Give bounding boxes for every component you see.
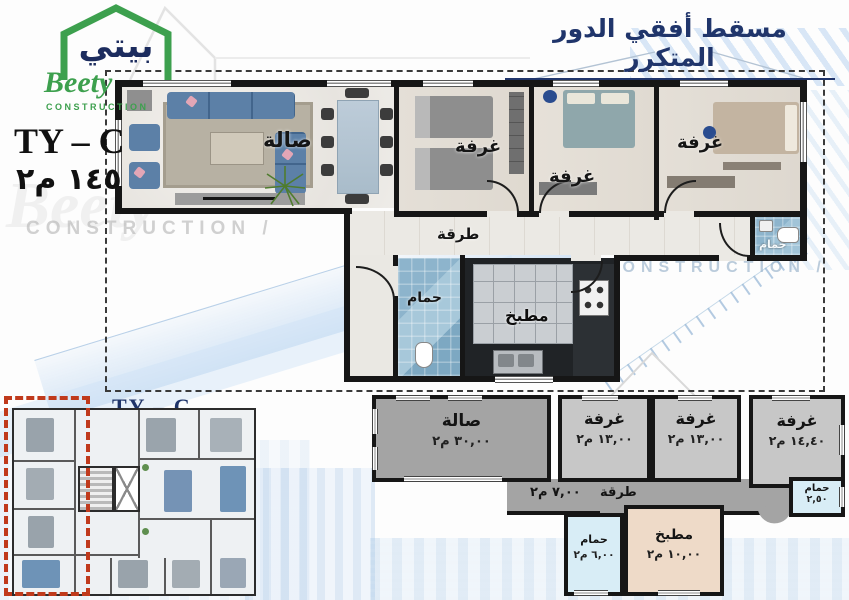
bedroom3-label: غرفة bbox=[677, 132, 723, 153]
schematic-room-hall: صالة ٣٠,٠٠ م٢ bbox=[372, 395, 551, 482]
window bbox=[658, 590, 700, 596]
window bbox=[448, 395, 482, 401]
bed-pillow bbox=[601, 93, 629, 104]
window bbox=[582, 395, 618, 401]
dining-table bbox=[337, 100, 379, 194]
plant-icon bbox=[263, 164, 307, 208]
dining-chair bbox=[321, 136, 334, 148]
dining-chair bbox=[321, 164, 334, 176]
schematic-room-bathroom-left: حمام ٦,٠٠ م٢ bbox=[564, 513, 624, 596]
unit-highlight bbox=[4, 396, 90, 596]
window bbox=[372, 447, 378, 470]
bed-pillow bbox=[415, 96, 430, 138]
mini-plant bbox=[142, 464, 149, 471]
elevator bbox=[114, 466, 140, 512]
dining-chair bbox=[345, 194, 369, 204]
sink-basin bbox=[518, 354, 534, 367]
window bbox=[839, 425, 845, 455]
bed-pillow bbox=[785, 105, 797, 151]
logo-arabic-name: بيتي bbox=[66, 26, 166, 66]
bed-bench bbox=[723, 162, 781, 170]
window bbox=[574, 590, 608, 596]
dining-chair bbox=[345, 88, 369, 98]
logo: بيتي Beety CONSTRUCTION bbox=[18, 4, 228, 122]
window bbox=[678, 395, 712, 401]
schematic-corridor-area: ٧,٠٠ م٢ bbox=[530, 485, 581, 500]
toilet bbox=[415, 342, 433, 368]
mini-bed bbox=[146, 418, 176, 452]
armchair-left-1 bbox=[129, 124, 160, 151]
window bbox=[372, 409, 378, 434]
bedroom2-label: غرفة bbox=[549, 166, 595, 187]
area-schematic: صالة ٣٠,٠٠ م٢ غرفة ١٣,٠٠ م٢ غرفة ١٣,٠٠ م… bbox=[372, 393, 849, 600]
nightstand bbox=[543, 90, 557, 103]
main-floor-plan: صالة غرفة غرفة غرفة طرقة حمام مطبخ حمام bbox=[115, 80, 807, 382]
dining-chair bbox=[380, 164, 393, 176]
mini-bed bbox=[172, 560, 200, 588]
schematic-room-bedroom-3: غرفة ١٤,٤٠ م٢ bbox=[749, 395, 845, 488]
small-bathroom-label: حمام bbox=[759, 238, 787, 251]
dining-chair bbox=[380, 108, 393, 120]
coffee-table bbox=[210, 132, 264, 165]
logo-latin-name: Beety bbox=[44, 66, 112, 100]
page-title: مسقط أفقي الدور المتكرر bbox=[505, 14, 835, 80]
bedroom1-label: غرفة bbox=[455, 136, 501, 157]
bed-pillow bbox=[415, 148, 430, 190]
window bbox=[495, 376, 553, 383]
kitchen-label: مطبخ bbox=[505, 306, 549, 325]
window bbox=[553, 80, 599, 87]
unit-area: ١٤٥ م٢ bbox=[16, 162, 122, 197]
mini-sofa bbox=[220, 466, 246, 512]
mini-table bbox=[220, 558, 246, 588]
window bbox=[680, 80, 728, 87]
schematic-room-bedroom-2: غرفة ١٣,٠٠ م٢ bbox=[651, 395, 741, 482]
window bbox=[404, 476, 502, 482]
unit-model: TY – C bbox=[14, 120, 125, 162]
window bbox=[396, 395, 430, 401]
wardrobe bbox=[509, 92, 524, 174]
window bbox=[327, 80, 391, 87]
sink-small bbox=[759, 220, 773, 232]
logo-tagline: CONSTRUCTION bbox=[46, 102, 149, 112]
kitchen-tile-area bbox=[473, 264, 573, 344]
corridor-label: طرقة bbox=[437, 225, 479, 243]
mini-plant bbox=[142, 528, 149, 535]
mini-dining-table bbox=[164, 470, 192, 512]
bathroom-label: حمام bbox=[407, 290, 442, 306]
mini-bed bbox=[210, 418, 242, 452]
window bbox=[772, 395, 810, 401]
armchair-left-2 bbox=[129, 162, 160, 189]
mini-bed bbox=[118, 560, 148, 588]
sink-basin bbox=[498, 354, 514, 367]
schematic-corridor-label: طرقة bbox=[600, 485, 637, 500]
schematic-room-bathroom-right: حمام ٢,٥٠ bbox=[789, 477, 845, 517]
window bbox=[839, 487, 845, 507]
window bbox=[423, 80, 473, 87]
bed-pillow bbox=[567, 93, 595, 104]
schematic-room-kitchen: مطبخ ١٠,٠٠ م٢ bbox=[624, 505, 724, 596]
dining-chair bbox=[321, 108, 334, 120]
dining-chair bbox=[380, 136, 393, 148]
hall-label: صالة bbox=[263, 128, 312, 152]
window bbox=[800, 102, 807, 162]
schematic-room-bedroom-1: غرفة ١٣,٠٠ م٢ bbox=[558, 395, 651, 482]
floor-overview: TY – C bbox=[8, 394, 298, 600]
